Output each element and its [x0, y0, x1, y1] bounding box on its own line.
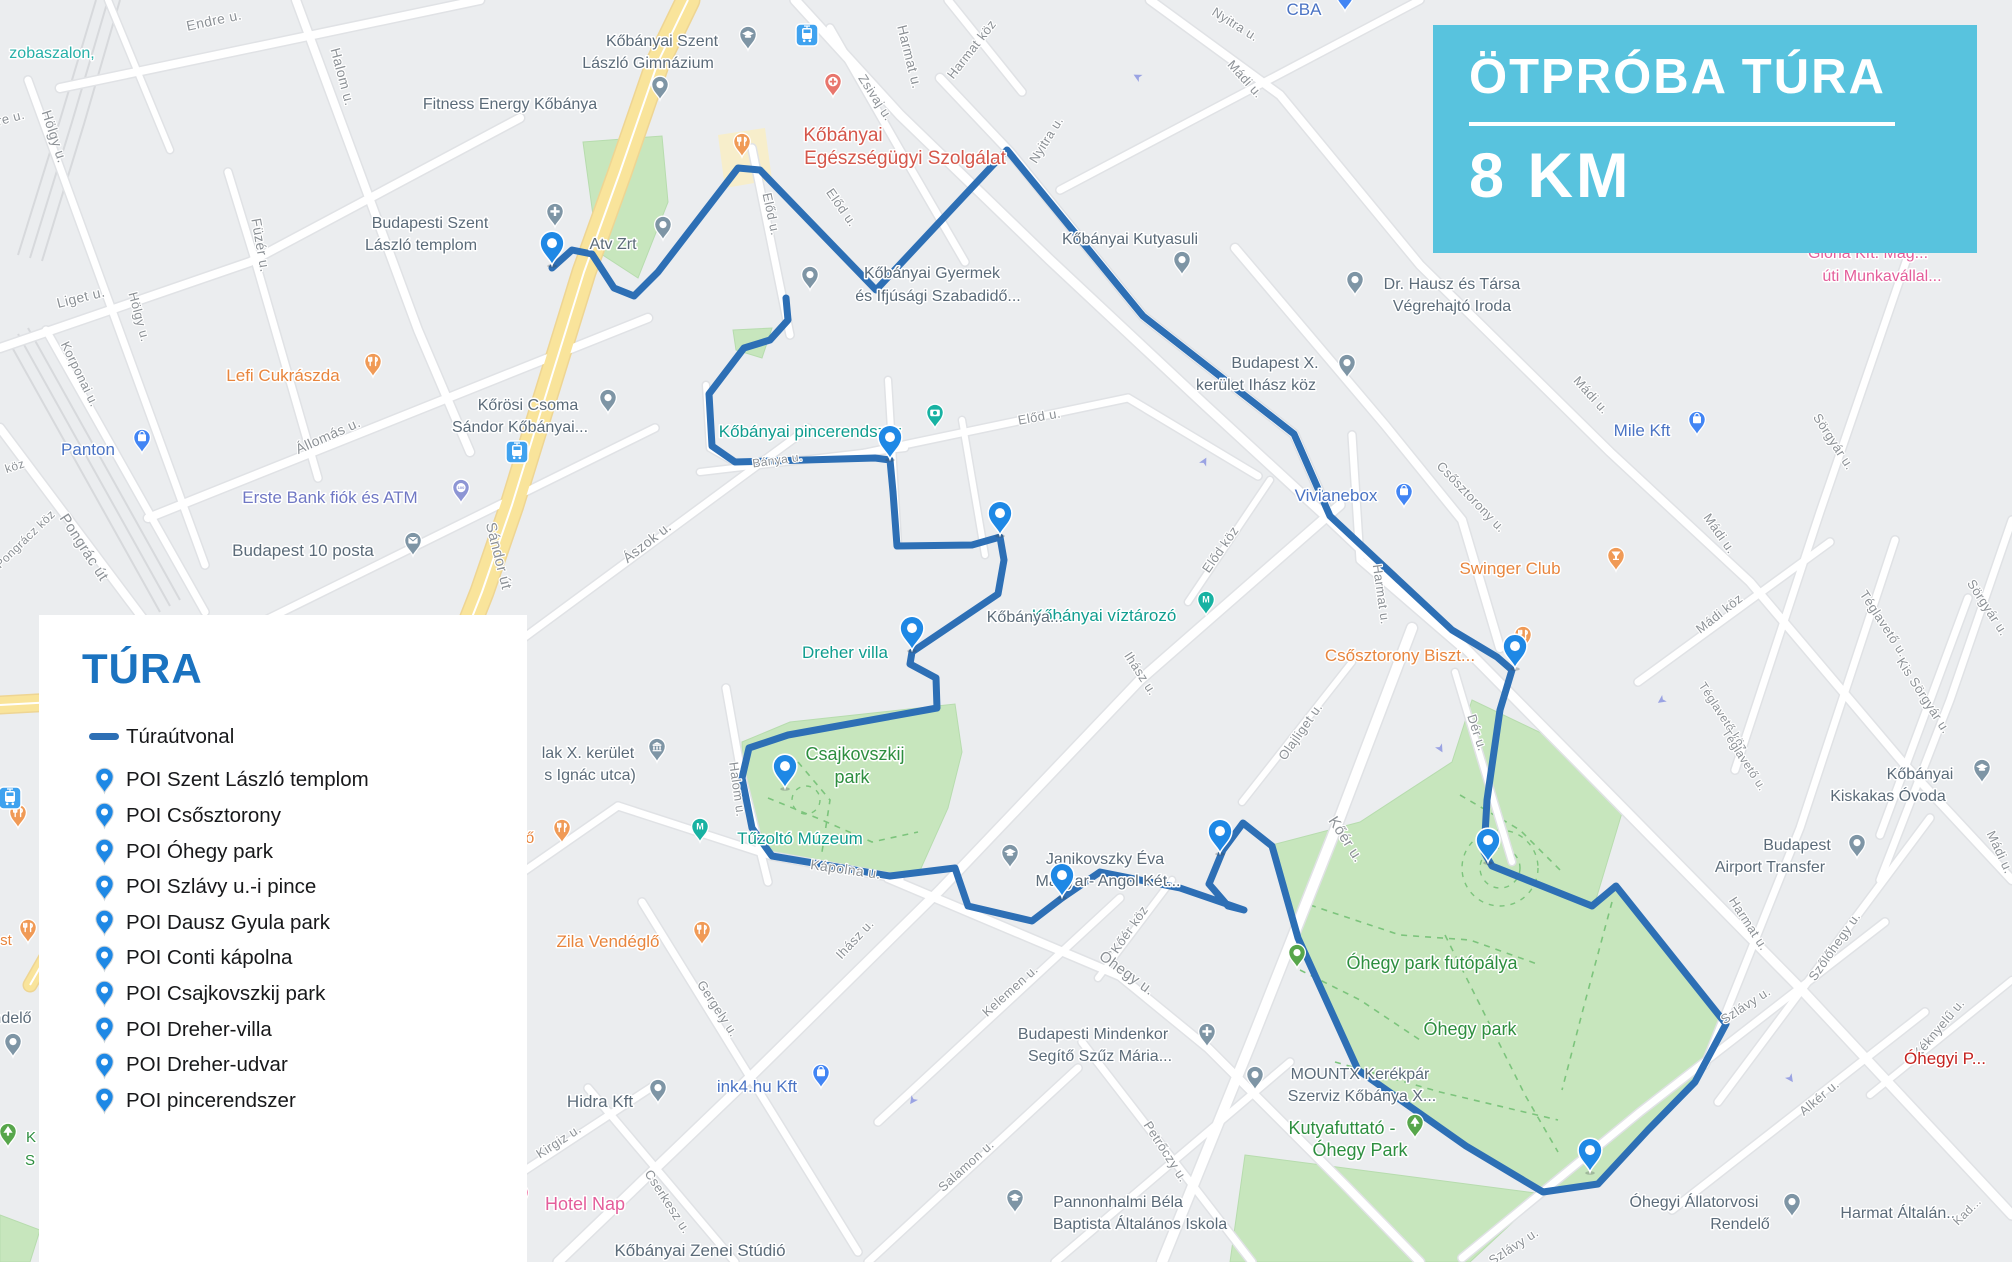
park-area [742, 704, 962, 875]
map-label: Lefi Cukrászda [226, 366, 340, 385]
legend-item-route: Túraútvonal [82, 719, 527, 755]
tram-glyph [809, 40, 812, 43]
pin-dot-icon [659, 221, 666, 228]
bank-icon [653, 746, 655, 749]
map-label: Óhegy Park [1312, 1139, 1408, 1160]
legend-item-label: POI Dreher-villa [126, 1018, 272, 1042]
map-label: Budapest X. [1231, 355, 1318, 372]
poi-pin-icon [82, 766, 126, 795]
legend-panel: TÚRA TúraútvonalPOI Szent László templom… [39, 615, 527, 1262]
poi-pin-icon [82, 801, 126, 830]
map-label: Egészségügyi Szolgálat [804, 148, 1006, 169]
map-label: CBA [1287, 0, 1323, 19]
legend-item-label: POI pincerendszer [126, 1089, 296, 1113]
bank-icon [659, 746, 661, 749]
tram-glyph [803, 40, 806, 43]
poi-pin-icon [82, 873, 126, 902]
map-label: ndelő [0, 1010, 32, 1027]
map-label: Baptista Általános Iskola [1053, 1214, 1227, 1233]
legend-item-poi-3: POI Szlávy u.-i pince [82, 869, 527, 905]
tram-glyph [12, 803, 15, 806]
poi-pin-hole [885, 432, 895, 442]
legend-item-label: POI Szent László templom [126, 768, 369, 792]
map-label: Hotel Nap [545, 1194, 625, 1214]
pin-dot-icon [1788, 1198, 1795, 1205]
legend-item-label: POI Dausz Gyula park [126, 911, 330, 935]
pin-dot-icon [1251, 1071, 1258, 1078]
graduation-icon [1012, 1199, 1018, 1201]
map-label: Zila Vendéglő [556, 932, 659, 951]
map-label: MOUNTX Kerékpár [1291, 1066, 1430, 1083]
map-label: Airport Transfer [1715, 859, 1826, 876]
legend-item-label: POI Szlávy u.-i pince [126, 875, 316, 899]
legend-item-label: POI Óhegy park [126, 840, 273, 864]
map-label: Budapest [1763, 837, 1831, 854]
pin-dot-icon [604, 394, 611, 401]
poi-pin-hole [1585, 1145, 1595, 1155]
tour-title: ÖTPRÓBA TÚRA [1469, 49, 1977, 105]
poi-pin-hole [1215, 826, 1225, 836]
map-label: Vivianebox [1295, 486, 1378, 505]
legend-item-poi-8: POI Dreher-udvar [82, 1047, 527, 1083]
map-label: Óhegy park futópálya [1346, 952, 1518, 973]
legend-item-label: POI Dreher-udvar [126, 1053, 288, 1077]
poi-pin-hole [995, 508, 1005, 518]
map-label: László templom [365, 237, 477, 254]
map-label: K [26, 1129, 36, 1146]
map-label: Hidra Kft [567, 1092, 633, 1111]
map-label: Szerviz Kőbánya X... [1288, 1088, 1437, 1105]
map-label: Erste Bank fiók és ATM [242, 488, 417, 507]
poi-pin-hole [1483, 835, 1493, 845]
tour-header: ÖTPRÓBA TÚRA 8 KM [1433, 25, 1977, 253]
atm-icon: 100 [458, 485, 465, 490]
map-label: park [834, 767, 870, 787]
map-label: Dreher villa [802, 643, 889, 662]
pin-dot-icon [1293, 949, 1300, 956]
shopping-bag-icon [1400, 488, 1408, 495]
map-label: László Gimnázium [582, 55, 714, 72]
bank-icon [653, 745, 662, 746]
legend-title: TÚRA [82, 645, 527, 693]
map-label: Budapesti Mindenkor [1018, 1026, 1169, 1043]
tram-glyph [514, 447, 521, 451]
map-label: Végrehajtó Iroda [1393, 298, 1511, 315]
map-label: Budapest 10 posta [232, 541, 374, 560]
map-label: Panton [61, 440, 115, 459]
tour-distance: 8 KM [1469, 140, 1977, 212]
graduation-icon [745, 36, 751, 38]
map-label: Pannonhalmi Béla [1053, 1194, 1183, 1211]
shopping-bag-icon [138, 434, 146, 441]
map-label: Swinger Club [1459, 559, 1560, 578]
map-label: Kőbányai [803, 125, 882, 146]
camera-icon [933, 411, 937, 415]
poi-pin-hole [547, 238, 557, 248]
map-label: S [25, 1152, 35, 1169]
map-label: Mile Kft [1614, 421, 1671, 440]
map-label: Óhegy park [1423, 1018, 1517, 1039]
tram-glyph [6, 803, 9, 806]
map-label: Segítő Szűz Mária... [1028, 1048, 1172, 1065]
graduation-icon [1979, 769, 1985, 771]
tram-glyph [519, 457, 522, 460]
map-label: Óhegyi Állatorvosi [1630, 1192, 1759, 1211]
map-label: Harmat Általán... [1840, 1203, 1959, 1222]
map-label: Kőbányai Zenei Stúdió [614, 1241, 785, 1260]
tram-stop-icon[interactable] [796, 24, 818, 46]
legend-item-label: Túraútvonal [126, 725, 234, 749]
legend-item-poi-4: POI Dausz Gyula park [82, 905, 527, 941]
map-label: Atv Zrt [589, 236, 637, 253]
legend-rows: TúraútvonalPOI Szent László templomPOI C… [82, 719, 527, 1119]
map-label: Csajkovszkij [805, 744, 904, 764]
legend-item-label: POI Csajkovszkij park [126, 982, 325, 1006]
map-label: Kőbányai Kutyasuli [1062, 231, 1198, 248]
map-label: Kőbánya... [987, 609, 1064, 626]
pin-dot-icon [806, 271, 813, 278]
tram-stop-icon[interactable] [0, 787, 21, 809]
shopping-bag-icon [817, 1069, 825, 1076]
legend-item-poi-6: POI Csajkovszkij park [82, 976, 527, 1012]
map-label: Kőbányai pincerendszer [719, 422, 902, 441]
map-label: Budapesti Szent [372, 215, 489, 232]
map-label: Óhegyi P... [1904, 1049, 1986, 1068]
tram-glyph [804, 30, 811, 34]
museum-icon: M [696, 821, 704, 831]
map-label: zobaszalon, [9, 45, 94, 62]
map-label: úti Munkavállal... [1822, 268, 1941, 285]
header-divider [1469, 122, 1895, 126]
map-label: kerület Ihász köz [1196, 377, 1316, 394]
poi-pin-hole [780, 761, 790, 771]
museum-icon: M [1202, 594, 1210, 604]
pin-dot-icon [654, 1084, 661, 1091]
poi-pin-icon [82, 944, 126, 973]
legend-item-poi-1: POI Csősztorony [82, 798, 527, 834]
route-line-icon [82, 733, 126, 740]
poi-pin-icon [82, 1086, 126, 1115]
tram-glyph [7, 793, 14, 797]
legend-item-poi-0: POI Szent László templom [82, 763, 527, 799]
poi-pin-hole [1510, 641, 1520, 651]
map-label: s Ignác utca) [544, 767, 636, 784]
map-label: ink4.hu Kft [717, 1077, 798, 1096]
map-label: Tűzoltó Múzeum [737, 829, 863, 848]
pin-dot-icon [1351, 276, 1358, 283]
map-label: Kőrösi Csoma [478, 397, 579, 414]
poi-pin-icon [82, 1015, 126, 1044]
pin-dot-icon [1853, 839, 1860, 846]
legend-item-poi-7: POI Dreher-villa [82, 1012, 527, 1048]
map-label: Kutyafuttató - [1288, 1118, 1395, 1138]
poi-pin-icon [82, 837, 126, 866]
pin-dot-icon [1343, 359, 1350, 366]
legend-item-label: POI Csősztorony [126, 804, 281, 828]
map-label: Kőbányai Gyermek [864, 265, 1001, 282]
map-label: Kőbányai Szent [606, 33, 719, 50]
map-label: Csősztorony Biszt... [1325, 646, 1475, 665]
bank-icon [653, 750, 662, 751]
pin-dot-icon [9, 1038, 16, 1045]
map-label: Kőbányai [1887, 766, 1954, 783]
pin-dot-icon [1178, 256, 1185, 263]
poi-pin-hole [907, 623, 917, 633]
map-label: Sándor Kőbányai... [452, 419, 588, 436]
map-label: Kiskakas Óvoda [1830, 786, 1946, 805]
graduation-icon [1007, 854, 1013, 856]
poi-pin-icon [82, 979, 126, 1008]
poi-pin-hole [1057, 870, 1067, 880]
legend-item-poi-5: POI Conti kápolna [82, 941, 527, 977]
map-label: st [0, 932, 13, 949]
tram-glyph [513, 457, 516, 460]
map-label: Fitness Energy Kőbánya [423, 96, 597, 113]
pin-dot-icon [656, 81, 663, 88]
map-label: és Ifjúsági Szabadidő... [855, 288, 1020, 305]
poi-pin-icon [82, 908, 126, 937]
map-label: Dr. Hausz és Társa [1384, 276, 1521, 293]
tram-stop-icon[interactable] [506, 441, 528, 463]
legend-item-label: POI Conti kápolna [126, 946, 292, 970]
poi-pin-icon [82, 1051, 126, 1080]
map-label: lak X. kerület [542, 745, 635, 762]
legend-item-poi-9: POI pincerendszer [82, 1083, 527, 1119]
map-label: Rendelő [1710, 1216, 1770, 1233]
legend-item-poi-2: POI Óhegy park [82, 834, 527, 870]
shopping-bag-icon [1693, 416, 1701, 423]
bank-icon [656, 746, 658, 749]
